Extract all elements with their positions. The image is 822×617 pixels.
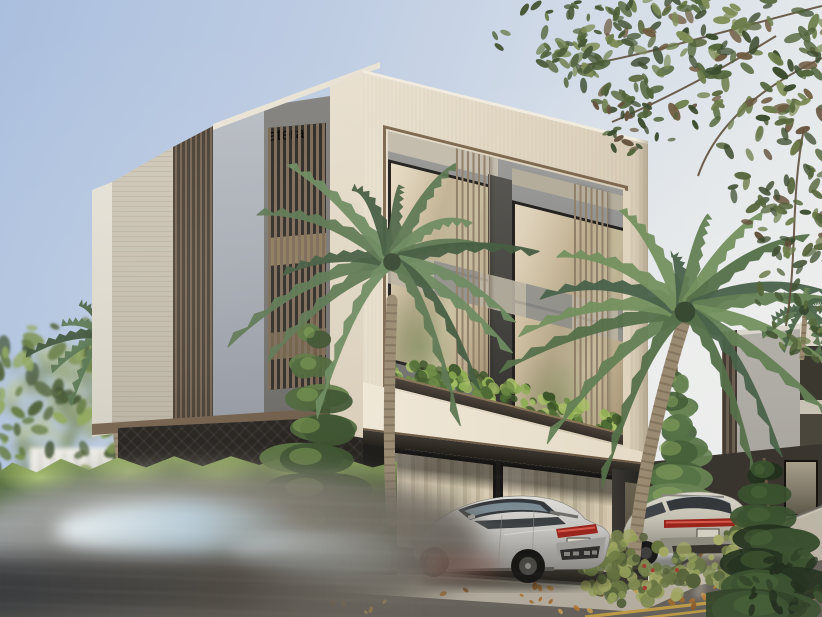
foliage-cluster bbox=[544, 0, 822, 129]
berry bbox=[642, 586, 646, 590]
conifer-bottom-right bbox=[706, 450, 822, 617]
conifer-foliage bbox=[706, 460, 822, 617]
berry bbox=[642, 564, 646, 568]
sedan-exhaust-3 bbox=[584, 551, 590, 555]
berry bbox=[675, 568, 679, 572]
scene-render: ateral bbox=[0, 0, 822, 617]
sedan-exhaust-4 bbox=[592, 551, 597, 555]
overhanging-branches bbox=[0, 0, 822, 420]
foliage-cluster bbox=[754, 241, 822, 365]
br-conifer-svg bbox=[706, 450, 822, 617]
foliage-cluster bbox=[716, 83, 822, 260]
berry bbox=[651, 568, 655, 572]
sedan-exhaust-2 bbox=[573, 552, 579, 556]
sedan-exhaust-1 bbox=[564, 552, 570, 556]
motion-blur-streaks bbox=[0, 470, 560, 617]
